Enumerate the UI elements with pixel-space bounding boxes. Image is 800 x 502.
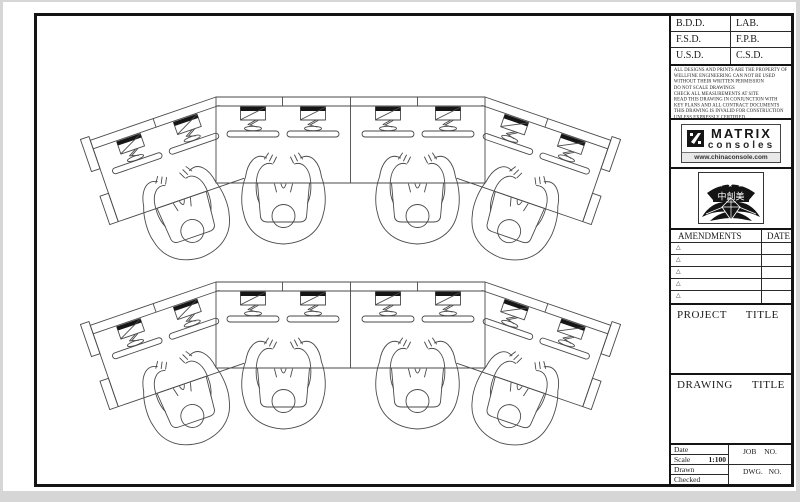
revision-triangle-icon: △ [671,279,761,290]
amendment-row: △ [671,255,791,267]
revision-info-table: Date Scale 1:100 Drawn Checked JOB NO. D… [671,445,791,484]
brand-product: consoles [708,140,775,151]
scale-value: 1:100 [709,455,727,464]
amendment-row: △ [671,279,791,291]
company-badge-section: ★ ★ ★ ★ ★ 中創美 [671,169,791,231]
amendments-header: AMENDMENTS DATE [671,230,791,243]
project-title-label: PROJECT TITLE [677,309,779,321]
disclaimer-notes: ALL DESIGNS AND PRINTS ARE THE PROPERTY … [671,66,791,120]
brand-name: MATRIX [711,127,772,140]
company-badge: ★ ★ ★ ★ ★ 中創美 [698,172,764,224]
drawing-title-label: DRAWING TITLE [677,379,785,391]
approvals-table: B.D.D. LAB. F.S.D. F.P.B. U.S.D. C.S.D. [671,16,791,66]
brand-logo-section: MATRIX consoles www.chinaconsole.com [671,120,791,169]
revision-triangle-icon: △ [671,291,761,303]
approval-cell: LAB. [731,16,791,32]
approval-cell: F.P.B. [731,32,791,48]
project-title-box: PROJECT TITLE [671,305,791,374]
title-block: B.D.D. LAB. F.S.D. F.P.B. U.S.D. C.S.D. … [669,16,791,484]
approval-cell: F.S.D. [671,32,731,48]
amendments-title: AMENDMENTS [671,230,761,242]
approval-cell: U.S.D. [671,48,731,64]
drawn-row: Drawn [671,465,728,475]
amendment-row: △ [671,267,791,279]
amendment-row: △ [671,291,791,303]
amendment-row: △ [671,243,791,255]
brand-url: www.chinaconsole.com [682,152,780,162]
approval-cell: C.S.D. [731,48,791,64]
dwg-number-cell: DWG. NO. [729,465,791,484]
drawing-title-box: DRAWING TITLE [671,375,791,445]
revision-triangle-icon: △ [671,255,761,266]
scale-row: Scale 1:100 [671,455,728,465]
drawing-frame: B.D.D. LAB. F.S.D. F.P.B. U.S.D. C.S.D. … [34,13,794,487]
drawing-sheet: B.D.D. LAB. F.S.D. F.P.B. U.S.D. C.S.D. … [3,2,796,491]
approval-cell: B.D.D. [671,16,731,32]
matrix-logo-icon [687,130,704,147]
revision-triangle-icon: △ [671,243,761,254]
revision-triangle-icon: △ [671,267,761,278]
checked-row: Checked [671,475,728,484]
amendments-date-label: DATE [761,230,791,242]
job-number-cell: JOB NO. [729,445,791,465]
badge-stars: ★ ★ ★ ★ ★ [708,182,754,189]
amendments-table: AMENDMENTS DATE △ △ △ △ △ [671,230,791,305]
date-row: Date [671,445,728,455]
